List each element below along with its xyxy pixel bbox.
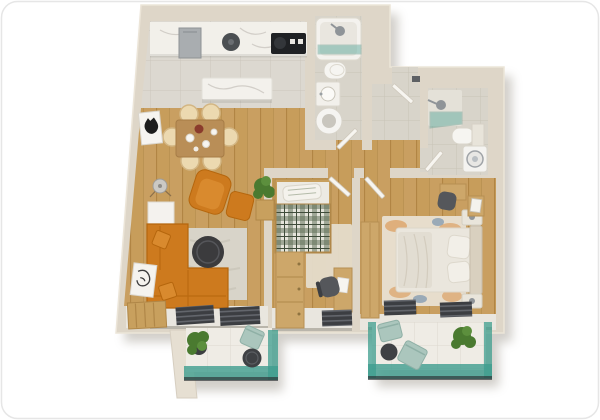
washing-machine-bath2: [463, 146, 487, 172]
cooktop: [271, 33, 306, 54]
plant-stand: [256, 200, 274, 220]
plate: [186, 134, 194, 142]
floor-plan-render: [0, 0, 600, 420]
radiator-grille-master: [384, 299, 417, 315]
balcony-right: [368, 320, 492, 380]
bed-pillow: [447, 235, 472, 260]
faucet: [320, 93, 323, 96]
bed-pillow: [282, 183, 321, 201]
leaning-art-frame: [130, 263, 157, 298]
balcony2-glass-frame: [368, 376, 492, 380]
washbasin: [321, 87, 335, 101]
radiator-grille-small-bedroom: [322, 309, 353, 326]
rug-blotch: [432, 218, 444, 226]
radiator-grille-master: [440, 301, 473, 317]
bed-headboard: [470, 226, 482, 294]
framed-photo: [470, 198, 482, 212]
sink-drain: [228, 39, 234, 45]
counter-shadow: [150, 54, 307, 58]
bed-pillow: [447, 261, 471, 284]
shower-head-icon: [436, 100, 446, 110]
plate: [203, 141, 210, 148]
radiator-grille-living: [220, 306, 261, 326]
master-bedroom-door-opening: [364, 168, 390, 178]
cooktop-dial: [290, 39, 295, 44]
cooktop-dial: [298, 39, 303, 44]
washbasin-cabinet: [316, 82, 340, 106]
washer-drum: [472, 156, 478, 162]
toilet-bath2: [452, 128, 474, 144]
entrance-door-frame: [412, 76, 420, 82]
wood-bench: [127, 301, 166, 329]
kitchen-island: [202, 78, 272, 103]
cup: [194, 147, 199, 152]
small-bedroom-door-opening: [328, 168, 354, 178]
bathtub-glass-screen: [318, 45, 361, 54]
radiator-grille-living: [175, 305, 214, 326]
cat-art-frame: [138, 111, 162, 145]
washer-drum: [322, 114, 336, 128]
balcony1-table: [243, 349, 262, 368]
plate: [211, 129, 217, 135]
balcony1-glass-frame: [184, 377, 278, 381]
double-bed: [396, 226, 482, 294]
balcony2-table: [381, 344, 398, 361]
toilet-cistern: [472, 124, 484, 146]
wardrobe-dresser: [276, 252, 304, 328]
dining-chair: [202, 104, 220, 122]
plaid-duvet: [276, 204, 330, 252]
single-bed: [275, 179, 331, 253]
washing-machine-bath1: [316, 108, 342, 134]
side-cabinet-master: [468, 196, 484, 216]
hall-tile-floor: [372, 84, 420, 140]
serving-dish: [195, 125, 204, 134]
burner: [274, 37, 286, 49]
